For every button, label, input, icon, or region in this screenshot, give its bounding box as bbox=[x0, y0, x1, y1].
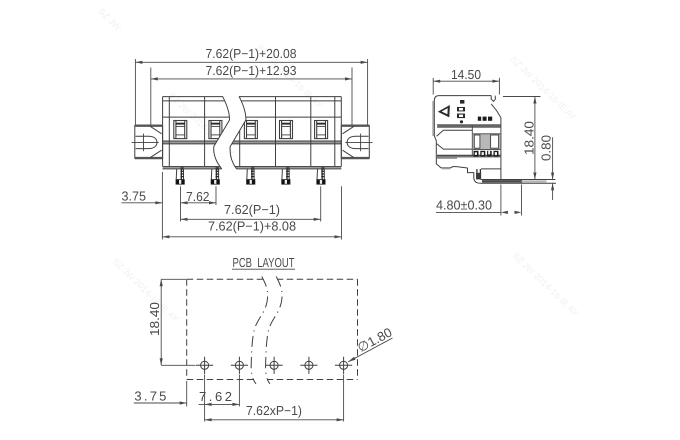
svg-text:14.50: 14.50 bbox=[451, 67, 481, 82]
svg-text:PCB LAYOUT: PCB LAYOUT bbox=[233, 255, 295, 270]
svg-text:7.62(P−1)+12.93: 7.62(P−1)+12.93 bbox=[206, 63, 297, 78]
svg-text:0.80: 0.80 bbox=[539, 135, 554, 161]
svg-text:4.80±0.30: 4.80±0.30 bbox=[436, 197, 492, 212]
svg-text:7.62xP−1): 7.62xP−1) bbox=[246, 403, 302, 418]
svg-text:7.62: 7.62 bbox=[199, 389, 232, 404]
svg-text:7.62: 7.62 bbox=[186, 189, 210, 204]
svg-text:7.62(P−1)+8.08: 7.62(P−1)+8.08 bbox=[208, 219, 296, 234]
svg-text:3.75: 3.75 bbox=[134, 389, 166, 404]
svg-text:7.62(P−1)+20.08: 7.62(P−1)+20.08 bbox=[206, 46, 297, 61]
svg-text:18.40: 18.40 bbox=[147, 302, 162, 336]
svg-text:3.75: 3.75 bbox=[122, 188, 147, 203]
svg-text:7.62(P−1): 7.62(P−1) bbox=[224, 202, 280, 217]
svg-text:18.40: 18.40 bbox=[522, 121, 537, 155]
